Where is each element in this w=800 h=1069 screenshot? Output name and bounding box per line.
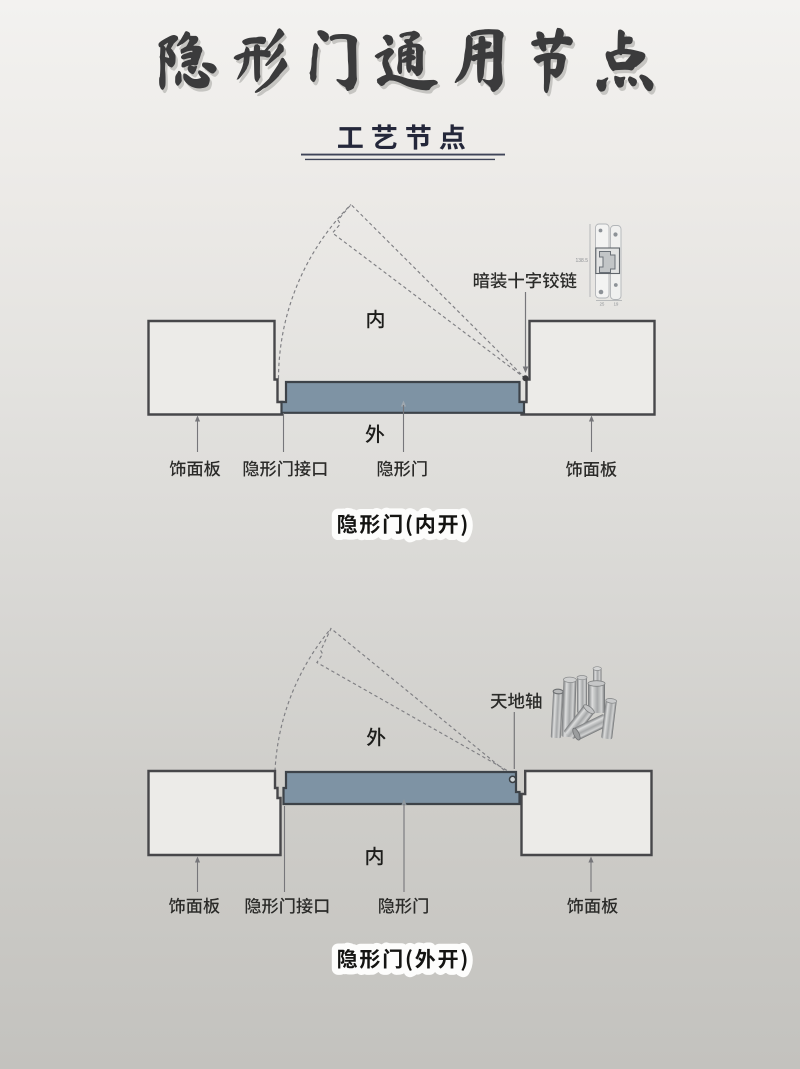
svg-text:19: 19 (614, 302, 619, 307)
svg-text:138.5: 138.5 (575, 258, 588, 264)
svg-text:25: 25 (600, 302, 605, 307)
